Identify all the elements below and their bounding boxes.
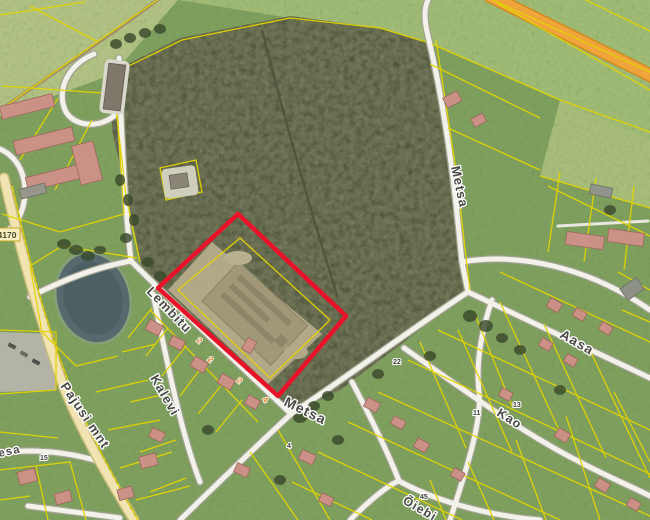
parcel-number: 4 bbox=[287, 443, 291, 450]
building bbox=[169, 173, 189, 189]
parcel-number: 15 bbox=[40, 455, 48, 462]
parcel-number: 22 bbox=[393, 359, 401, 366]
parcel-number: 11 bbox=[473, 410, 481, 417]
parcel-number: 13 bbox=[513, 402, 521, 409]
map-canvas: Lembitu Kalevi Metsa Metsa Aasa Kao Paju… bbox=[0, 0, 650, 520]
sand-patch bbox=[224, 251, 252, 265]
aerial-map-viewport[interactable]: Lembitu Kalevi Metsa Metsa Aasa Kao Paju… bbox=[0, 0, 650, 520]
parcel-number: 45 bbox=[420, 494, 428, 501]
road-number-badge: 4170 bbox=[0, 228, 20, 241]
badge-number: 4170 bbox=[0, 230, 17, 240]
